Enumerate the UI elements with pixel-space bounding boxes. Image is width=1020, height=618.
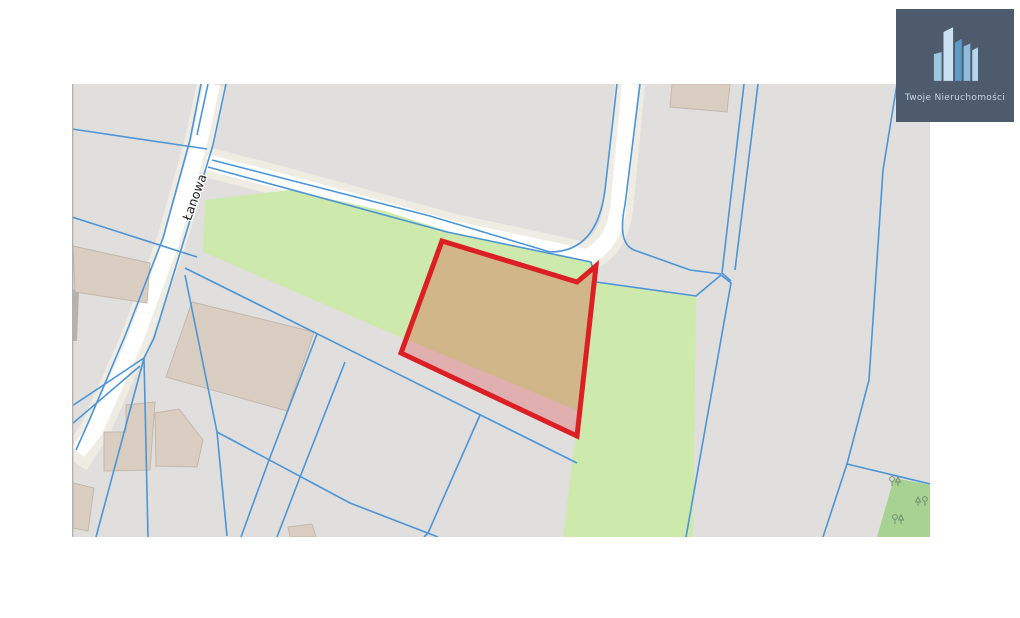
brand-name: Twoje Nieruchomości xyxy=(905,93,1005,103)
brand-logo: Twoje Nieruchomości xyxy=(896,9,1014,122)
buildings-icon xyxy=(932,25,978,87)
page: Łanowa Twoje Nieruchomości xyxy=(0,0,1020,618)
map-canvas[interactable]: Łanowa xyxy=(0,0,1020,618)
